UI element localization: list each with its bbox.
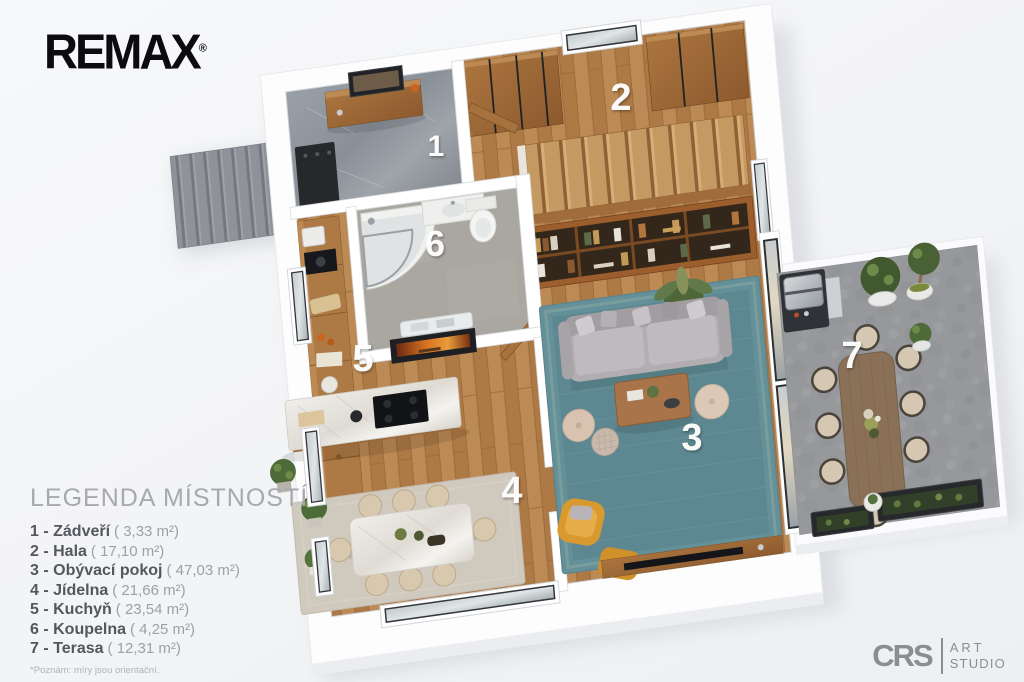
remax-logo: REMAX® <box>44 23 207 80</box>
legend-item: 4 - Jídelna( 21,66 m²) <box>30 581 320 601</box>
legend-item: 1 - Zádveří( 3,33 m²) <box>30 522 320 542</box>
crs-logo-line2: STUDIO <box>950 656 1006 672</box>
cookbook <box>316 352 342 368</box>
legend-title: LEGENDA MÍSTNOSTÍ <box>30 484 320 513</box>
legend-item-area: ( 21,66 m²) <box>112 582 185 599</box>
room-terasa <box>776 235 1000 538</box>
room-number-2: 2 <box>610 77 631 119</box>
legend-item: 5 - Kuchyň( 23,54 m²) <box>30 600 320 620</box>
crs-logo-divider <box>941 638 943 674</box>
room-number-3: 3 <box>681 417 702 459</box>
legend-item-label: 3 - Obývací pokoj <box>30 562 162 579</box>
legend-item-area: ( 47,03 m²) <box>166 562 239 579</box>
legend-item: 2 - Hala( 17,10 m²) <box>30 542 320 562</box>
legend-item: 6 - Koupelna( 4,25 m²) <box>30 620 320 640</box>
crs-logo-line1: ART <box>950 640 1006 656</box>
legend-item-area: ( 12,31 m²) <box>108 640 181 657</box>
coffee-machine <box>302 226 325 247</box>
legend-item-label: 5 - Kuchyň <box>30 601 112 618</box>
throw-pillow <box>600 311 617 327</box>
room-number-6: 6 <box>425 223 445 264</box>
room-number-1: 1 <box>428 130 445 163</box>
legend-footnote: *Poznám: míry jsou orientační. <box>30 665 320 676</box>
room-obyvaci-pokoj <box>533 256 784 593</box>
legend-item-label: 1 - Zádveří <box>30 523 110 540</box>
legend-item-label: 7 - Terasa <box>30 640 104 657</box>
legend-items: 1 - Zádveří( 3,33 m²) 2 - Hala( 17,10 m²… <box>30 522 320 659</box>
remax-logo-text: REMAX <box>44 24 199 79</box>
legend: LEGENDA MÍSTNOSTÍ 1 - Zádveří( 3,33 m²) … <box>30 484 320 676</box>
coat-closet <box>295 142 340 209</box>
crs-logo-initials: CRS <box>872 638 931 674</box>
legend-item-area: ( 23,54 m²) <box>116 601 189 618</box>
throw-pillow <box>661 302 678 319</box>
legend-item-label: 2 - Hala <box>30 543 87 560</box>
crs-art-studio-watermark: CRS ART STUDIO <box>872 638 1006 674</box>
legend-item-area: ( 17,10 m²) <box>91 543 164 560</box>
legend-item: 7 - Terasa( 12,31 m²) <box>30 639 320 659</box>
room-number-7: 7 <box>841 335 862 377</box>
chair-pillow <box>569 505 592 521</box>
legend-item-label: 4 - Jídelna <box>30 582 108 599</box>
legend-item-area: ( 3,33 m²) <box>114 523 179 540</box>
legend-item-area: ( 4,25 m²) <box>130 621 195 638</box>
legend-item: 3 - Obývací pokoj( 47,03 m²) <box>30 561 320 581</box>
legend-item-label: 6 - Koupelna <box>30 621 126 638</box>
registered-trademark: ® <box>199 42 207 54</box>
floorplan-render-page: 1 2 3 4 5 6 7 REMAX® LEGENDA MÍSTNOSTÍ 1… <box>0 0 1024 682</box>
room-number-4: 4 <box>501 470 522 512</box>
room-number-5: 5 <box>352 338 373 380</box>
